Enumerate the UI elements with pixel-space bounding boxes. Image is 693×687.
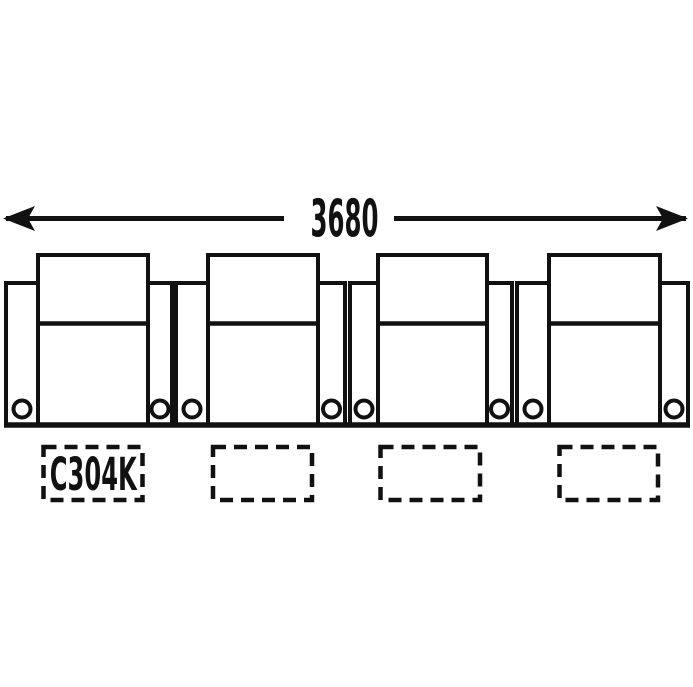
cupholder-icon (356, 401, 373, 418)
seat-4 (517, 255, 688, 425)
seat-2 (176, 255, 345, 425)
seat-label-slot-2[interactable] (213, 447, 312, 500)
cupholder-icon (14, 401, 31, 418)
seat-backrest (38, 255, 148, 425)
dimension-value: 3680 (311, 190, 379, 250)
cupholder-icon (666, 401, 683, 418)
seat-1 (6, 255, 172, 425)
seat-3 (350, 255, 512, 425)
cupholder-icon (491, 401, 508, 418)
cupholder-icon (184, 401, 201, 418)
dimension-arrow: 3680 (3, 190, 688, 250)
seat-backrest (378, 255, 487, 425)
seat-label-slot-4[interactable] (560, 447, 659, 500)
seat-backrest (208, 255, 318, 425)
label-slot-box[interactable] (560, 447, 659, 500)
cupholder-icon (323, 401, 340, 418)
seat-model-label: C304K (50, 448, 138, 501)
seating-row-diagram: 3680 (0, 0, 693, 687)
cupholder-icon (152, 401, 169, 418)
label-slot-box[interactable] (381, 447, 481, 500)
label-slot-box[interactable] (213, 447, 312, 500)
seat-label-slot-1[interactable]: C304K (44, 447, 143, 501)
cupholder-icon (525, 401, 542, 418)
seat-label-slot-3[interactable] (381, 447, 481, 500)
seat-backrest (549, 255, 660, 425)
